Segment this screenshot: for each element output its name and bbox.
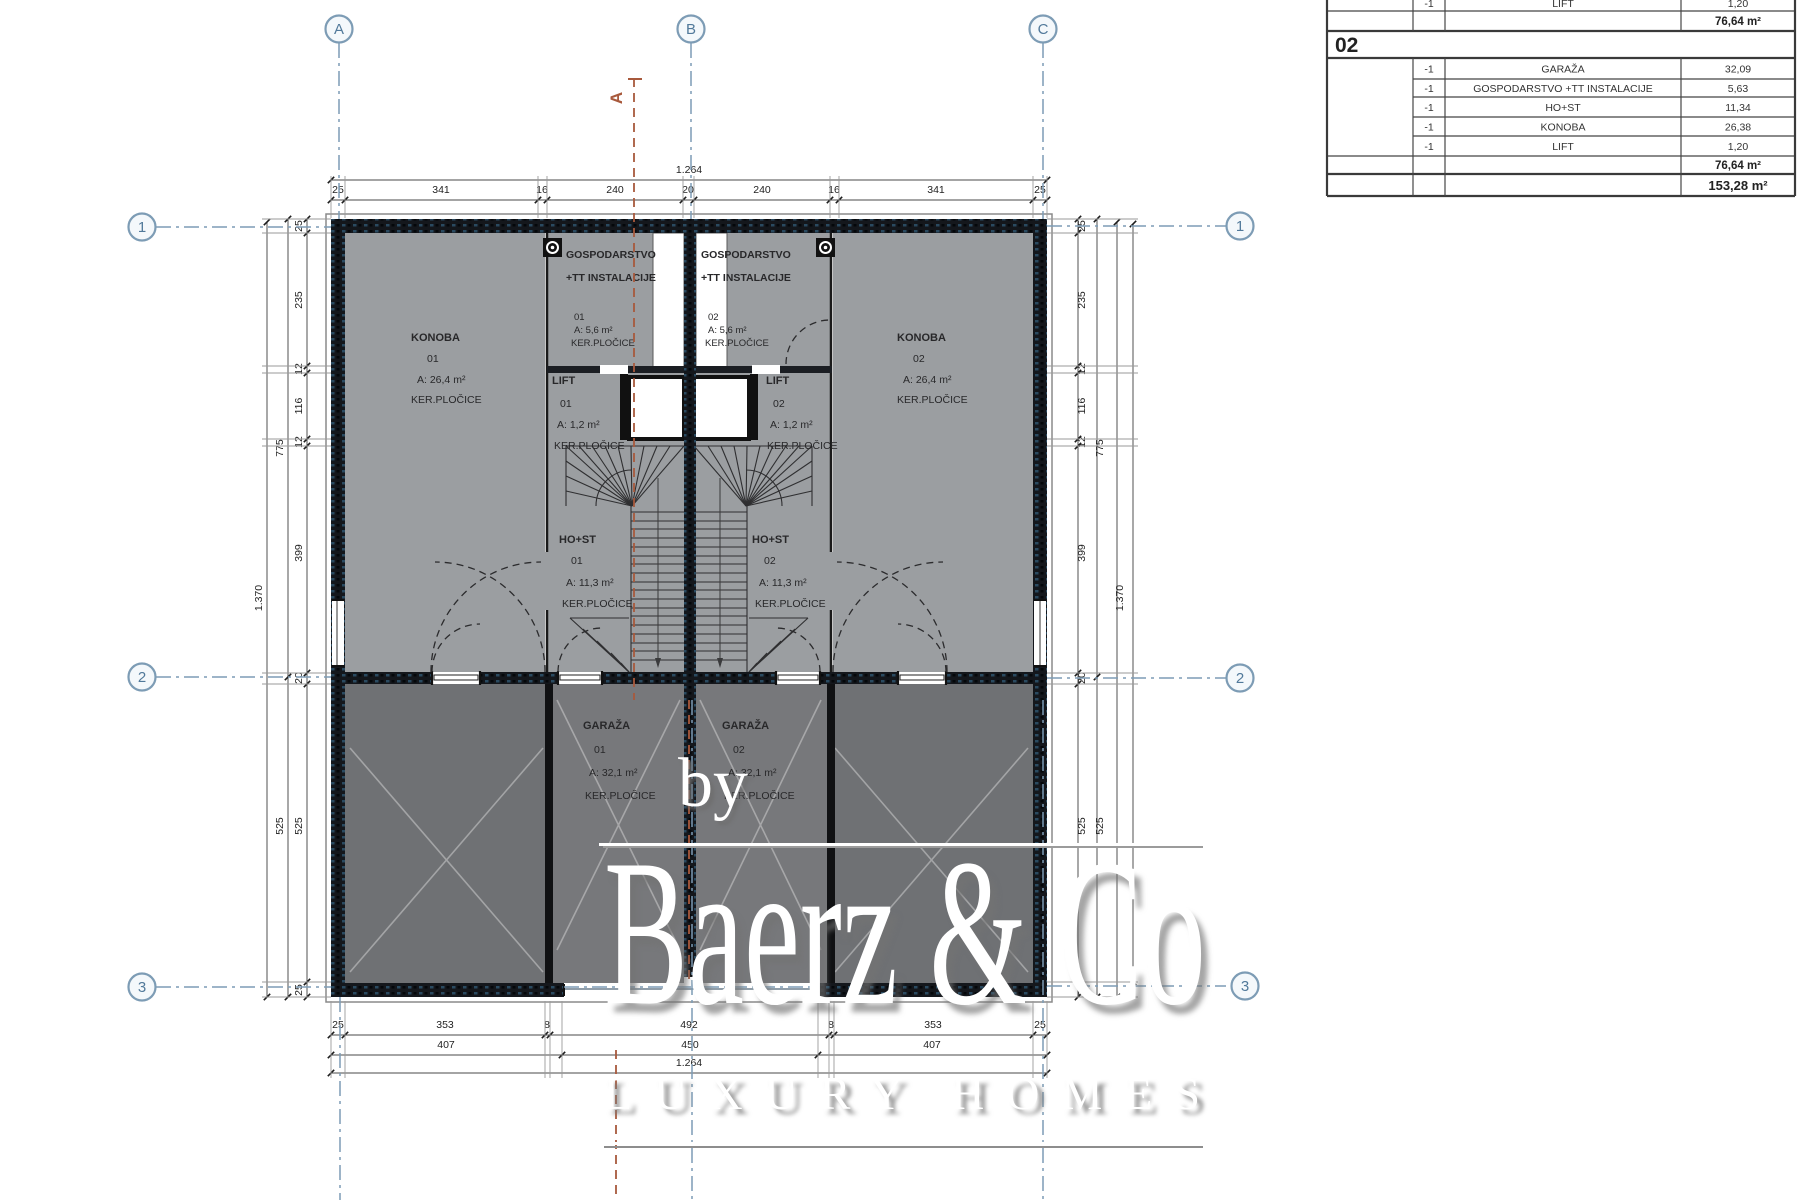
svg-text:+TT INSTALACIJE: +TT INSTALACIJE bbox=[566, 272, 656, 284]
svg-text:3: 3 bbox=[1241, 978, 1249, 995]
svg-text:26,38: 26,38 bbox=[1725, 122, 1751, 134]
svg-text:02: 02 bbox=[913, 353, 925, 365]
svg-text:116: 116 bbox=[1076, 397, 1088, 414]
svg-text:1.370: 1.370 bbox=[253, 585, 265, 611]
svg-text:GARAŽA: GARAŽA bbox=[1541, 63, 1584, 76]
svg-text:-1: -1 bbox=[1424, 102, 1433, 114]
svg-text:525: 525 bbox=[274, 817, 286, 835]
svg-text:25: 25 bbox=[332, 1019, 344, 1031]
svg-text:A: A bbox=[334, 21, 344, 38]
svg-text:-1: -1 bbox=[1424, 0, 1433, 10]
svg-text:C: C bbox=[1038, 21, 1049, 38]
svg-text:1.264: 1.264 bbox=[676, 164, 702, 176]
svg-text:2: 2 bbox=[1236, 670, 1244, 687]
svg-text:HO+ST: HO+ST bbox=[752, 534, 789, 546]
svg-text:LIFT: LIFT bbox=[766, 375, 789, 387]
svg-text:399: 399 bbox=[293, 544, 305, 562]
svg-text:HO+ST: HO+ST bbox=[1545, 102, 1581, 114]
svg-text:KER.PLOČICE: KER.PLOČICE bbox=[897, 393, 968, 406]
svg-text:A: 11,3 m²: A: 11,3 m² bbox=[566, 577, 614, 589]
svg-text:235: 235 bbox=[293, 291, 305, 309]
svg-text:KONOBA: KONOBA bbox=[411, 332, 460, 344]
svg-text:25: 25 bbox=[293, 220, 305, 232]
svg-text:01: 01 bbox=[560, 398, 572, 410]
svg-text:A: 1,2 m²: A: 1,2 m² bbox=[557, 419, 600, 431]
svg-text:KONOBA: KONOBA bbox=[897, 332, 946, 344]
svg-text:KER.PLOČICE: KER.PLOČICE bbox=[755, 597, 826, 610]
svg-text:2: 2 bbox=[138, 669, 146, 686]
svg-text:LIFT: LIFT bbox=[1552, 141, 1574, 153]
svg-text:A: A bbox=[607, 92, 626, 104]
svg-text:GOSPODARSTVO: GOSPODARSTVO bbox=[701, 249, 791, 261]
svg-text:399: 399 bbox=[1076, 544, 1088, 562]
svg-text:1,20: 1,20 bbox=[1728, 0, 1749, 10]
svg-text:KER.PLOČICE: KER.PLOČICE bbox=[411, 393, 482, 406]
svg-text:GARAŽA: GARAŽA bbox=[583, 719, 630, 732]
svg-text:116: 116 bbox=[293, 397, 305, 414]
svg-text:A: 32,1 m²: A: 32,1 m² bbox=[589, 767, 638, 779]
svg-text:A: 5,6 m²: A: 5,6 m² bbox=[708, 325, 747, 336]
svg-text:02: 02 bbox=[773, 398, 785, 410]
svg-text:240: 240 bbox=[606, 184, 624, 196]
svg-text:02: 02 bbox=[1335, 34, 1358, 57]
svg-text:+TT INSTALACIJE: +TT INSTALACIJE bbox=[701, 272, 791, 284]
svg-text:25: 25 bbox=[293, 984, 305, 996]
svg-text:240: 240 bbox=[753, 184, 771, 196]
svg-text:-1: -1 bbox=[1424, 83, 1433, 95]
svg-text:02: 02 bbox=[764, 555, 776, 567]
svg-text:1,20: 1,20 bbox=[1728, 141, 1749, 153]
svg-text:25: 25 bbox=[332, 184, 344, 196]
svg-text:341: 341 bbox=[432, 184, 450, 196]
svg-text:01: 01 bbox=[427, 353, 439, 365]
svg-text:LIFT: LIFT bbox=[1552, 0, 1574, 10]
svg-text:GOSPODARSTVO: GOSPODARSTVO bbox=[566, 249, 656, 261]
svg-text:5,63: 5,63 bbox=[1728, 83, 1749, 95]
svg-text:KONOBA: KONOBA bbox=[1541, 122, 1586, 134]
svg-text:A: 11,3 m²: A: 11,3 m² bbox=[759, 577, 807, 589]
svg-text:3: 3 bbox=[138, 979, 146, 996]
svg-text:02: 02 bbox=[708, 312, 719, 323]
svg-text:25: 25 bbox=[1034, 184, 1046, 196]
svg-text:235: 235 bbox=[1076, 291, 1088, 309]
svg-text:153,28 m²: 153,28 m² bbox=[1708, 178, 1768, 193]
svg-text:20: 20 bbox=[682, 184, 694, 196]
svg-text:-1: -1 bbox=[1424, 141, 1433, 153]
svg-text:GARAŽA: GARAŽA bbox=[722, 719, 769, 732]
svg-text:775: 775 bbox=[274, 439, 286, 457]
svg-text:A: 1,2 m²: A: 1,2 m² bbox=[770, 419, 813, 431]
svg-text:LIFT: LIFT bbox=[552, 375, 575, 387]
svg-text:-1: -1 bbox=[1424, 122, 1433, 134]
svg-text:KER.PLOČICE: KER.PLOČICE bbox=[554, 439, 625, 452]
svg-text:HO+ST: HO+ST bbox=[559, 534, 596, 546]
svg-text:KER.PLOČICE: KER.PLOČICE bbox=[562, 597, 633, 610]
svg-text:11,34: 11,34 bbox=[1725, 102, 1751, 114]
svg-text:KER.PLOČICE: KER.PLOČICE bbox=[585, 789, 656, 802]
svg-text:KER.PLOČICE: KER.PLOČICE bbox=[705, 338, 769, 349]
svg-text:1: 1 bbox=[138, 219, 146, 236]
svg-text:20: 20 bbox=[293, 672, 305, 684]
svg-text:GOSPODARSTVO +TT INSTALACIJE: GOSPODARSTVO +TT INSTALACIJE bbox=[1473, 83, 1653, 95]
svg-text:01: 01 bbox=[571, 555, 583, 567]
svg-text:A: 5,6 m²: A: 5,6 m² bbox=[574, 325, 613, 336]
svg-text:407: 407 bbox=[437, 1039, 455, 1051]
svg-text:341: 341 bbox=[927, 184, 945, 196]
svg-text:32,09: 32,09 bbox=[1725, 64, 1751, 76]
svg-text:A: 26,4 m²: A: 26,4 m² bbox=[417, 374, 466, 386]
svg-text:01: 01 bbox=[594, 744, 606, 756]
svg-text:775: 775 bbox=[1094, 439, 1106, 457]
svg-text:01: 01 bbox=[574, 312, 585, 323]
svg-text:KER.PLOČICE: KER.PLOČICE bbox=[571, 338, 635, 349]
svg-text:76,64 m²: 76,64 m² bbox=[1715, 160, 1761, 172]
svg-text:1.370: 1.370 bbox=[1114, 585, 1126, 611]
svg-text:-1: -1 bbox=[1424, 64, 1433, 76]
svg-text:353: 353 bbox=[436, 1019, 454, 1031]
svg-text:KER.PLOČICE: KER.PLOČICE bbox=[767, 439, 838, 452]
svg-text:76,64 m²: 76,64 m² bbox=[1715, 16, 1761, 28]
svg-text:B: B bbox=[686, 21, 696, 38]
svg-text:1: 1 bbox=[1236, 218, 1244, 235]
svg-text:A: 26,4 m²: A: 26,4 m² bbox=[903, 374, 952, 386]
svg-text:525: 525 bbox=[293, 817, 305, 835]
